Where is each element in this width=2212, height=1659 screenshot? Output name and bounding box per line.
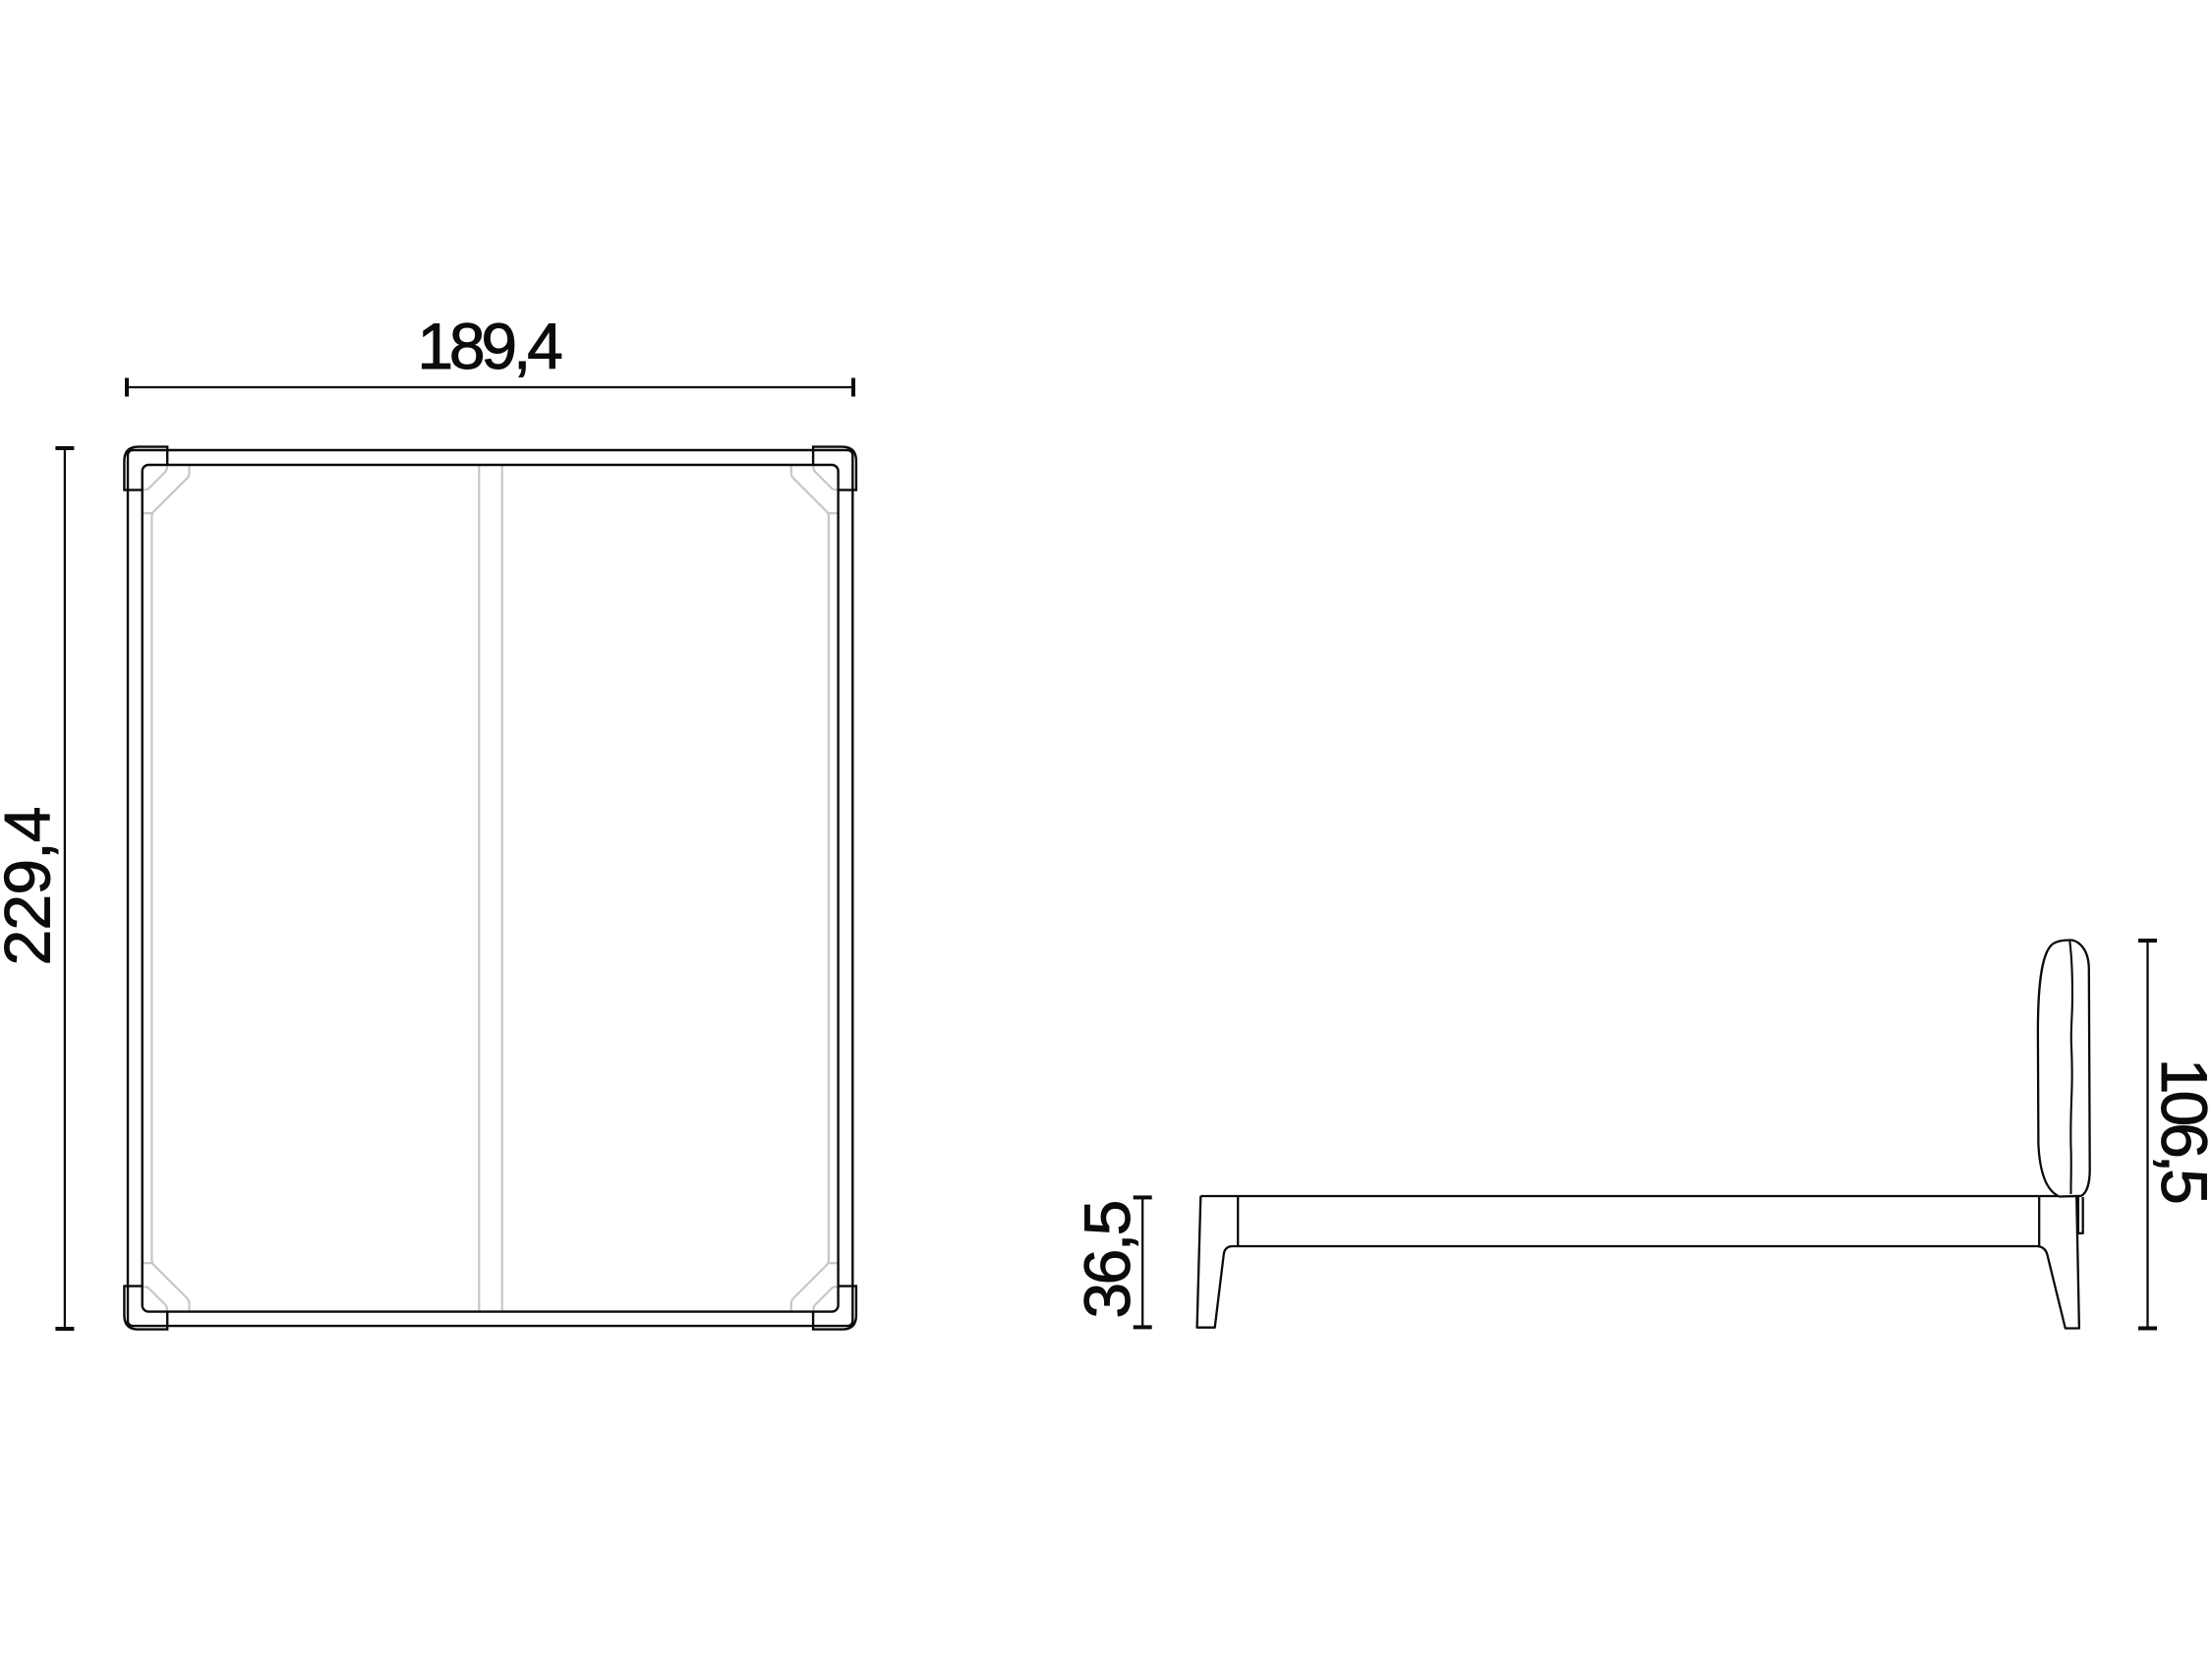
svg-text:36,5: 36,5: [1071, 1200, 1143, 1319]
svg-text:106,5: 106,5: [2148, 1058, 2212, 1205]
svg-text:229,4: 229,4: [0, 807, 64, 966]
svg-text:189,4: 189,4: [417, 310, 562, 382]
